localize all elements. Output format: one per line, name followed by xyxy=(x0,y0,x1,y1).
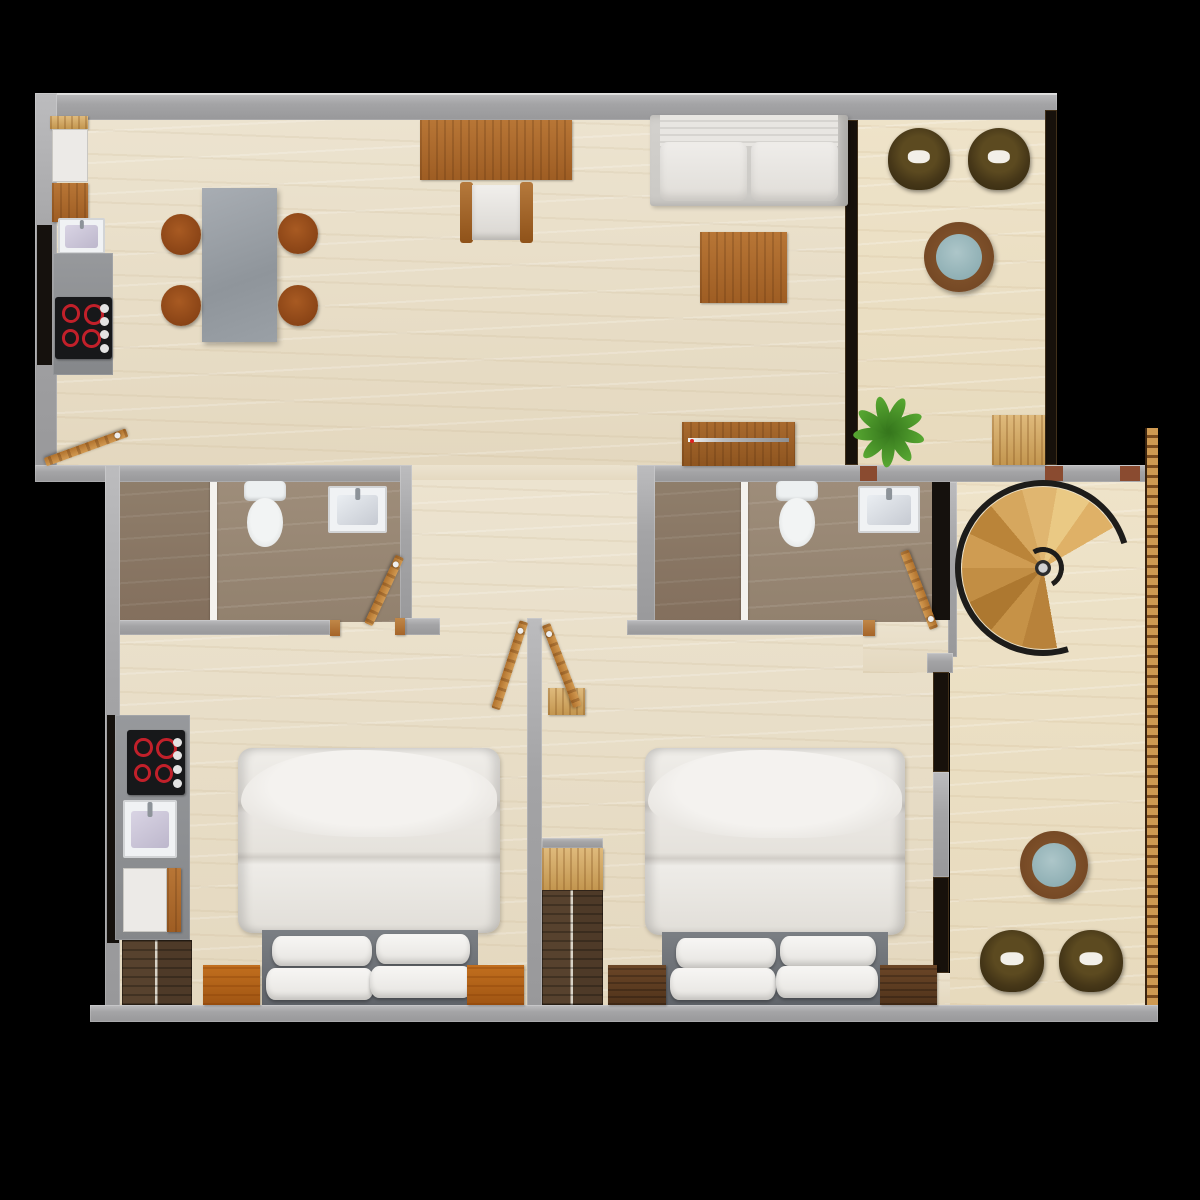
bath1-right-wall xyxy=(400,465,412,635)
bath1-sink xyxy=(328,486,387,533)
bed1-nightstand-right xyxy=(467,965,524,1005)
kitchen-sink xyxy=(58,218,105,254)
bed1-pillow-1 xyxy=(272,936,372,966)
bed2-window-pier xyxy=(933,772,949,877)
window-balcony-right xyxy=(1045,110,1057,465)
bed2-pillow-4 xyxy=(776,966,878,998)
bed2-pillow-3 xyxy=(670,968,776,1000)
terrace-table xyxy=(1020,831,1088,899)
bed1-wardrobe xyxy=(122,940,192,1005)
decor-wood-panel xyxy=(992,415,1045,465)
tv-console xyxy=(682,422,795,466)
bath2-left-wall xyxy=(637,465,655,635)
mid-wall-left xyxy=(35,465,412,482)
bath2-bottom-wall xyxy=(627,620,863,635)
closet-top-band xyxy=(542,838,603,848)
console-table xyxy=(420,120,572,180)
balcony-chair-1 xyxy=(888,128,950,190)
dining-table xyxy=(202,188,277,342)
kitchenette-sink xyxy=(123,800,177,858)
bath1-shower-screen xyxy=(210,481,217,621)
bed1-pillow-4 xyxy=(370,966,472,998)
bed2-nightstand-right xyxy=(880,965,937,1005)
bed1-pillow-2 xyxy=(376,934,470,964)
dining-chair-3 xyxy=(161,285,201,326)
bath2-shower-screen xyxy=(741,481,748,621)
kitchen-hob xyxy=(55,297,112,359)
dining-chair-1 xyxy=(161,214,201,255)
potted-plant xyxy=(853,391,933,471)
wall-brick-3 xyxy=(1120,466,1140,481)
door-jamb-1 xyxy=(330,620,340,636)
kitchenette-cabinet-edge xyxy=(167,868,181,932)
bath2-sink xyxy=(858,486,920,533)
terrace-chair-1 xyxy=(980,930,1044,992)
bed2-closet-shelf xyxy=(542,848,603,890)
bath2-shower-floor xyxy=(655,480,743,622)
bath1-shower-floor xyxy=(120,480,212,622)
fridge xyxy=(52,129,88,182)
terrace-chair-2 xyxy=(1059,930,1123,992)
bed2-wardrobe xyxy=(542,890,603,1005)
coffee-table xyxy=(700,232,787,303)
dining-chair-4 xyxy=(278,285,318,326)
bed2-window-a xyxy=(933,672,949,772)
sofa xyxy=(650,115,848,206)
bath2-toilet xyxy=(775,481,819,548)
bed2-duvet xyxy=(645,748,905,935)
fridge-counter-wood xyxy=(50,116,88,129)
bed1-pillow-3 xyxy=(266,968,374,1000)
bed2-pillow-2 xyxy=(780,936,876,966)
kitchen-tall-unit xyxy=(37,225,52,365)
bottom-wall xyxy=(90,1005,1158,1022)
terrace-railing xyxy=(1145,428,1158,1005)
stub-wall xyxy=(927,653,953,673)
door-jamb-2 xyxy=(395,618,405,635)
kitchenette-cabinet xyxy=(123,868,167,932)
balcony-table xyxy=(924,222,994,292)
door-jamb-3 xyxy=(863,620,875,636)
bed2-window-b xyxy=(933,877,949,973)
bed1-duvet xyxy=(238,748,500,933)
floor-plan-canvas xyxy=(0,0,1200,1200)
bath2-dark-cabinet xyxy=(932,482,950,620)
top-wall xyxy=(35,93,1057,120)
bed2-nightstand-left xyxy=(608,965,666,1005)
kitchenette-hob xyxy=(127,730,185,795)
spiral-staircase xyxy=(955,480,1131,656)
bath1-bottom-wall xyxy=(105,620,330,635)
dining-chair-2 xyxy=(278,213,318,254)
bed1-nightstand-left xyxy=(203,965,260,1005)
kitchen-cabinet-wood xyxy=(52,183,88,222)
bath1-bottom-wall-b xyxy=(405,618,440,635)
bedroom-divider-wall xyxy=(527,618,542,1010)
desk-chair xyxy=(460,182,533,243)
bath1-toilet xyxy=(243,481,287,548)
balcony-chair-2 xyxy=(968,128,1030,190)
bed2-pillow-1 xyxy=(676,938,776,968)
